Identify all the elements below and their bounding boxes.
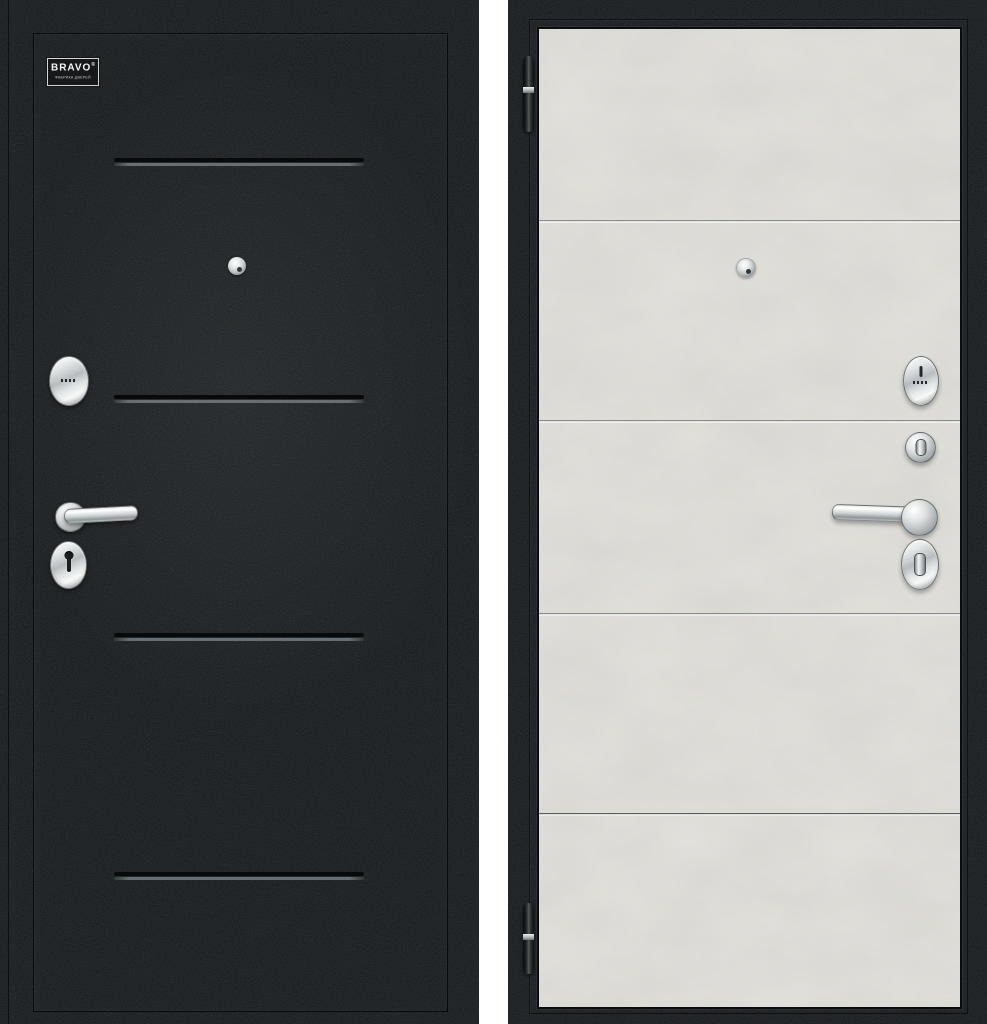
keyway-slot bbox=[920, 366, 923, 377]
door-groove bbox=[114, 872, 364, 880]
peephole bbox=[228, 257, 246, 275]
panel-seam-line bbox=[539, 813, 960, 816]
brand-logo-text: BRAVO® bbox=[51, 63, 95, 73]
keyhole-slot bbox=[913, 381, 929, 384]
thumbturn-escutcheon bbox=[901, 539, 939, 590]
cylinder-escutcheon bbox=[49, 356, 89, 406]
handle-rose bbox=[901, 499, 938, 536]
panel-seam-line bbox=[539, 613, 960, 616]
door-reverse-leaf bbox=[508, 0, 987, 1024]
keyway-escutcheon bbox=[903, 356, 939, 406]
thumbturn-cylinder bbox=[905, 432, 936, 463]
door-groove bbox=[114, 395, 364, 403]
brand-logo-subtitle: ФАБРИКА ДВЕРЕЙ bbox=[55, 76, 91, 80]
product-photo-door-views: BRAVO® ФАБРИКА ДВЕРЕЙ bbox=[0, 0, 987, 1024]
keyhole-escutcheon bbox=[50, 541, 87, 589]
brand-logo-badge: BRAVO® ФАБРИКА ДВЕРЕЙ bbox=[47, 58, 99, 86]
between-doors-gap bbox=[479, 0, 508, 1024]
peephole bbox=[736, 258, 756, 278]
peephole-lens bbox=[237, 267, 242, 272]
door-hinge-top bbox=[523, 56, 534, 132]
door-front-leaf: BRAVO® ФАБРИКА ДВЕРЕЙ bbox=[0, 0, 479, 1024]
door-hinge-bottom bbox=[523, 903, 534, 974]
keyhole-stem bbox=[67, 557, 71, 572]
thumbturn-knob bbox=[914, 553, 926, 576]
hinge-chrome-band bbox=[523, 87, 534, 93]
door-panel-outline bbox=[33, 33, 448, 1012]
hinge-chrome-band bbox=[523, 934, 534, 940]
door-groove bbox=[114, 633, 364, 641]
thumbturn-knob bbox=[915, 439, 926, 456]
door-edge-line bbox=[8, 0, 9, 1024]
keyhole-slot bbox=[61, 379, 77, 382]
door-groove bbox=[114, 158, 364, 166]
peephole-lens bbox=[746, 269, 751, 274]
panel-seam-line bbox=[539, 420, 960, 423]
panel-seam-line bbox=[539, 220, 960, 223]
trademark-mark: ® bbox=[91, 62, 95, 68]
